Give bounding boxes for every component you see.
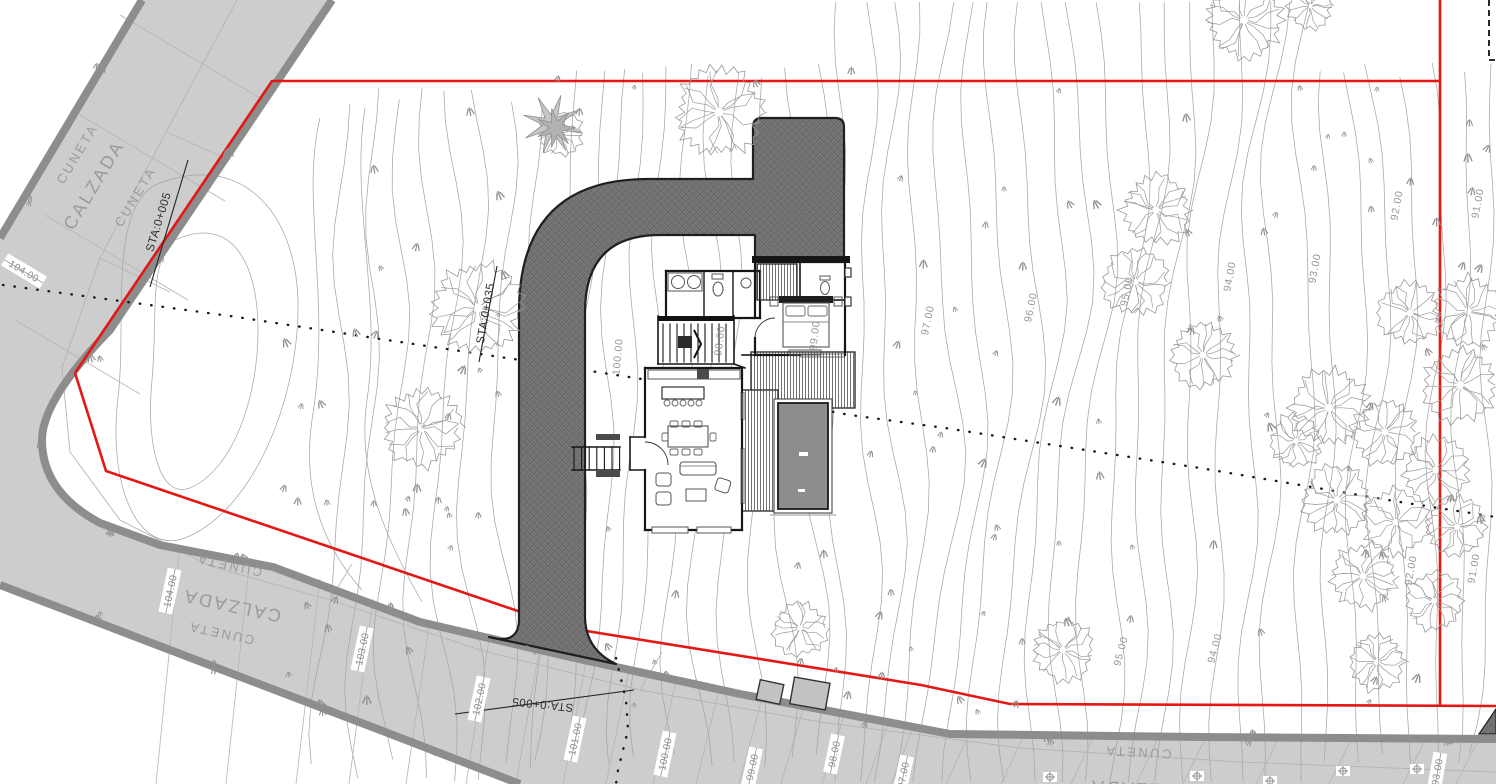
tree (1033, 617, 1093, 684)
tree-branch (386, 429, 419, 433)
tree (771, 601, 830, 657)
tree-branch (1136, 253, 1146, 279)
grass-tuft (930, 446, 937, 454)
level-marker (1336, 766, 1350, 776)
tree-branch (1399, 508, 1424, 521)
tree-branch (1218, 0, 1241, 18)
tree-branch (1137, 257, 1153, 280)
contour-line (1209, 2, 1243, 782)
tree (1286, 365, 1371, 444)
tree-branch (1430, 604, 1434, 629)
grass-tuft (1209, 540, 1217, 549)
tree-canopy (1170, 322, 1240, 390)
site-plan-canvas: CUNETACALZADACUNETACUNETACALZADACUNETACU… (0, 0, 1496, 784)
tree-branch (1444, 289, 1466, 309)
grass-tuft (992, 349, 999, 357)
tree-branch (1439, 461, 1466, 471)
tree-branch (1311, 0, 1324, 4)
tree-branch (1403, 316, 1409, 342)
site-plan-drawing: CUNETACALZADACUNETACUNETACALZADACUNETACU… (0, 0, 1496, 784)
grass-tuft (1052, 395, 1063, 407)
tree (1170, 322, 1240, 390)
stair-arrow (678, 336, 692, 348)
tree-branch (1187, 328, 1202, 352)
grass-tuft (96, 355, 103, 363)
level-marker (1190, 771, 1204, 781)
grass-tuft (1096, 418, 1102, 425)
tree-branch (1062, 653, 1066, 679)
tree-branch (1380, 435, 1385, 463)
contour-line (861, 2, 883, 782)
grass-tuft (1090, 198, 1102, 210)
tree (1101, 248, 1171, 316)
tree-canopy (1433, 272, 1496, 346)
tree-branch (1206, 335, 1228, 353)
grass-tuft (1474, 262, 1485, 274)
tree-branch (1065, 622, 1076, 647)
grass-tuft (351, 327, 361, 338)
tree-branch (1361, 545, 1368, 573)
tree-branch (1294, 7, 1309, 20)
grass-tuft (1096, 471, 1105, 481)
tree-branch (1248, 0, 1272, 18)
tree-branch (1174, 344, 1200, 354)
grass-tuft (1381, 594, 1389, 603)
grass-tuft (1182, 113, 1191, 123)
grass-tuft (316, 399, 326, 410)
contour-elevation-label: 93.00 (1307, 253, 1324, 285)
tree-branch (1247, 0, 1266, 17)
shed (790, 677, 830, 710)
tree-branch (1413, 583, 1432, 599)
tree-canopy (1033, 617, 1093, 684)
tree-branch (426, 409, 454, 426)
grass-tuft (893, 340, 902, 350)
tree (1206, 0, 1287, 61)
contour-line (1129, 2, 1171, 782)
grass-tuft (1056, 87, 1062, 94)
tree-branch (1159, 211, 1181, 231)
tree-branch (425, 431, 454, 447)
grass-tuft (955, 694, 965, 705)
tree-branch (1366, 435, 1384, 456)
tree (1301, 464, 1371, 536)
contour-line (942, 2, 988, 782)
bed-headboard (779, 296, 833, 303)
tree-branch (1396, 286, 1408, 310)
tree (1377, 280, 1441, 345)
tree-branch (476, 266, 483, 304)
grass-tuft (977, 457, 989, 469)
contour-elevation-label: 95.00 (1111, 635, 1130, 667)
grass-tuft (1065, 199, 1075, 210)
tree-branch (1374, 500, 1394, 520)
grass-tuft (447, 544, 454, 551)
tree-branch (1409, 603, 1432, 614)
tree-branch (1439, 471, 1465, 481)
contour-elevation-label: 95.00 (1118, 275, 1136, 307)
grass-tuft (1342, 131, 1347, 137)
tree-branch (1290, 0, 1308, 5)
dashed-corner-line (1489, 0, 1496, 60)
tree-branch (562, 134, 582, 136)
grass-tuft (324, 499, 330, 506)
grass-tuft (1367, 157, 1373, 164)
tree-branch (1274, 443, 1293, 455)
grass-tuft (370, 164, 379, 174)
tree-branch (1459, 529, 1476, 547)
tree-branch (1369, 524, 1393, 539)
tree-branch (1310, 8, 1317, 27)
tree-canopy (1301, 464, 1371, 536)
tree-branch (1271, 435, 1293, 441)
contour-elevation-label: 94.00 (1205, 632, 1224, 664)
grass-tuft (475, 512, 481, 519)
tree-branch (1279, 444, 1295, 460)
tree-branch (1203, 324, 1206, 352)
tree-branch (1173, 356, 1200, 364)
tree-branch (1380, 652, 1403, 661)
grass-tuft (576, 108, 583, 116)
tree-branch (1407, 471, 1433, 482)
tree-branch (1399, 516, 1426, 528)
tree-branch (1426, 575, 1435, 598)
column (845, 297, 851, 306)
tree-branch (1435, 528, 1455, 543)
grass-tuft (897, 174, 905, 182)
grass-tuft (1256, 627, 1265, 637)
grass-tuft (1374, 86, 1379, 92)
grass-tuft (843, 690, 852, 700)
tree (1285, 0, 1333, 31)
grass-tuft (993, 523, 1001, 531)
grass-tuft (446, 512, 453, 519)
grass-tuft (1056, 540, 1061, 546)
tree-branch (1464, 386, 1490, 404)
contour-elevation-label: 92.00 (1389, 190, 1406, 222)
contour-line (151, 233, 258, 490)
tree-canopy (1286, 365, 1371, 444)
tree-branch (1248, 9, 1279, 23)
tree-branch (1356, 644, 1375, 660)
tree-branch (775, 625, 798, 629)
grass-tuft (1272, 211, 1280, 219)
tree-branch (1432, 515, 1455, 525)
tree (675, 64, 766, 155)
grass-tuft (412, 242, 421, 252)
contour-line (1469, 64, 1494, 754)
tree-branch (775, 629, 797, 635)
contour-line (998, 2, 1046, 782)
tree-branch (1469, 314, 1472, 344)
tree-branch (723, 114, 759, 126)
tree-branch (1132, 212, 1153, 233)
deck-boards (742, 390, 778, 511)
tree-branch (1416, 446, 1433, 468)
tree-branch (722, 116, 737, 150)
stair-landing (658, 316, 734, 321)
grass-tuft (1265, 421, 1276, 433)
contour-line (1180, 2, 1215, 782)
tree-branch (1454, 281, 1467, 308)
grass-tuft (1019, 262, 1027, 271)
grass-tuft (848, 67, 855, 75)
tree-branch (1359, 579, 1363, 607)
grass-tuft (413, 483, 421, 493)
shed (756, 680, 784, 705)
grass-tuft (1378, 550, 1387, 560)
contour-elevation-label: 97.00 (919, 304, 937, 336)
grass-tuft (867, 450, 875, 459)
tree-branch (424, 431, 436, 462)
tree-branch (1387, 404, 1399, 429)
contour-line (606, 73, 643, 763)
floor (630, 437, 645, 470)
tree-canopy (771, 601, 830, 657)
grass-tuft (477, 367, 484, 374)
grass-tuft (405, 495, 412, 503)
grass-tuft (444, 506, 450, 513)
contour-line (1048, 2, 1094, 782)
tree-branch (1289, 444, 1296, 466)
tree-branch (1453, 499, 1456, 524)
tree-branch (1367, 636, 1376, 659)
grass-tuft (982, 221, 989, 229)
grass-tuft (1129, 544, 1135, 551)
station-label: STA:0+035 (475, 282, 497, 345)
grass-tuft (1127, 615, 1135, 624)
tree-branch (420, 432, 424, 465)
tree-branch (723, 93, 757, 109)
grass-tuft (1368, 205, 1375, 212)
level-marker (1410, 764, 1424, 774)
tree-branch (787, 630, 799, 650)
tree-branch (1206, 356, 1233, 362)
tree-branch (1340, 502, 1363, 521)
tree-branch (1439, 456, 1464, 469)
tree-branch (1297, 444, 1308, 464)
tree-branch (1387, 435, 1398, 462)
tree-branch (1396, 286, 1409, 310)
grass-tuft (888, 589, 895, 597)
tree-branch (1459, 389, 1460, 420)
tree-branch (1299, 442, 1319, 454)
tree-branch (1245, 24, 1261, 53)
grass-tuft (402, 507, 410, 516)
tree-branch (1138, 284, 1153, 307)
tree-canopy (1101, 248, 1171, 316)
contour-line (966, 2, 1013, 782)
tree-branch (1464, 374, 1494, 384)
tree-branch (1280, 421, 1294, 439)
grass-tuft (919, 259, 927, 269)
tree-branch (386, 417, 419, 427)
grass-tuft (280, 337, 291, 349)
floor (645, 368, 742, 530)
grass-tuft (1297, 85, 1303, 92)
tree-branch (1158, 189, 1181, 208)
tree-branch (1366, 577, 1393, 585)
grass-tuft (1466, 119, 1473, 127)
tree-branch (1354, 663, 1374, 677)
tree-branch (1380, 660, 1405, 666)
contour-line (913, 2, 966, 782)
tree-branch (1293, 406, 1325, 417)
grass-tuft (603, 641, 613, 652)
grass-tuft (875, 610, 885, 621)
tree-branch (722, 81, 746, 109)
tree (1433, 272, 1496, 346)
tree-branch (1333, 397, 1365, 407)
window-sill (697, 527, 731, 533)
tree-branch (1248, 22, 1280, 28)
tree-branch (389, 431, 419, 446)
tree-branch (1350, 657, 1374, 662)
tree-branch (1411, 451, 1433, 468)
grass-tuft (1406, 177, 1414, 186)
level-marker (1263, 776, 1277, 784)
tree-branch (1131, 251, 1135, 279)
tree (1350, 633, 1409, 694)
contour-line (1024, 2, 1067, 782)
grass-tuft (980, 610, 986, 617)
grass-tuft (1264, 411, 1271, 418)
tree-branch (1415, 473, 1434, 493)
grass-tuft (465, 107, 474, 117)
tree-branch (1471, 284, 1487, 309)
level-marker (1043, 772, 1057, 782)
contour-elevation-label: 94.00 (1222, 261, 1239, 293)
tree-branch (1379, 664, 1399, 679)
tree-branch (1336, 504, 1349, 531)
closet (757, 264, 797, 300)
grass-tuft (1002, 186, 1007, 191)
tree-branch (1234, 0, 1242, 16)
grass-tuft (937, 431, 944, 439)
contour-line (894, 2, 929, 782)
grass-tuft (1464, 153, 1472, 163)
tree-branch (449, 277, 474, 305)
grass-tuft (952, 306, 958, 313)
tree-canopy (1423, 345, 1496, 426)
tree-branch (1312, 8, 1328, 19)
tree-branch (1366, 572, 1394, 577)
tree-branch (1411, 283, 1416, 310)
grass-tuft (1361, 549, 1370, 559)
tree-branch (1413, 294, 1434, 311)
window-sill (652, 527, 688, 533)
contour-line (1259, 2, 1290, 782)
grass-tuft (279, 484, 288, 494)
grass-tuft (294, 497, 301, 505)
contour-elevation-label: 91.00 (1466, 553, 1483, 585)
grass-tuft (671, 589, 680, 599)
tree-branch (1201, 358, 1203, 386)
contour-line (361, 108, 422, 602)
tree-branch (1367, 665, 1376, 688)
tree-branch (1332, 574, 1360, 576)
grass-tuft (1325, 133, 1330, 139)
tree-branch (709, 117, 721, 153)
tree-branch (1358, 642, 1376, 659)
tree-branch (1341, 501, 1368, 513)
tree-branch (1204, 325, 1213, 352)
tree-canopy (1377, 280, 1441, 345)
grass-tuft (990, 533, 998, 541)
grass-tuft (652, 659, 657, 665)
grass-tuft (1423, 347, 1433, 358)
stove (697, 369, 709, 379)
grass-tuft (494, 390, 502, 398)
column (845, 268, 851, 277)
grass-tuft (1311, 165, 1317, 172)
tree-branch (1405, 468, 1433, 472)
grass-tuft (1483, 143, 1493, 153)
tree-branch (1135, 213, 1154, 236)
tree-branch (1138, 272, 1164, 284)
tree-branch (423, 397, 442, 424)
tree-branch (1461, 352, 1472, 381)
pool-ladder (798, 489, 805, 492)
grass-tuft (820, 549, 828, 558)
grass-tuft (457, 364, 469, 376)
grass-tuft (1412, 672, 1423, 684)
contour-line (1425, 63, 1446, 753)
tree-branch (1385, 401, 1387, 429)
tree-canopy (1206, 0, 1287, 61)
grass-tuft (1458, 261, 1468, 271)
tree (1423, 345, 1496, 426)
grass-tuft (974, 708, 981, 715)
planter (596, 434, 620, 440)
tree-branch (1244, 0, 1248, 16)
tree-branch (1159, 212, 1187, 220)
contour-elevation-label: 92.00 (1403, 555, 1420, 587)
tree-branch (1366, 514, 1393, 525)
contour-elevation-label: 100.00 (610, 338, 625, 376)
grass-tuft (298, 402, 305, 409)
house-floor-plan (572, 256, 855, 533)
tree-branch (1408, 592, 1431, 601)
tree-canopy (675, 64, 766, 155)
grass-tuft (494, 190, 505, 202)
pool-ladder (799, 452, 808, 456)
grass-tuft (909, 646, 914, 652)
grass-tuft (377, 264, 385, 272)
contour-line (874, 2, 907, 782)
contour-line (1292, 2, 1316, 782)
grass-tuft (632, 84, 637, 90)
tree-branch (710, 71, 719, 108)
contour-line (309, 118, 362, 590)
tree-canopy (1350, 633, 1409, 694)
tree-branch (1337, 467, 1343, 497)
tree-branch (803, 629, 824, 638)
pavement-wedge (1479, 709, 1496, 734)
planter (596, 471, 620, 477)
grass-tuft (794, 561, 802, 569)
contour-line (1318, 71, 1336, 761)
tree-branch (1411, 316, 1427, 338)
contour-elevation-label: 96.00 (1022, 291, 1040, 323)
tree-branch (1437, 298, 1464, 310)
tree-branch (1332, 411, 1347, 441)
tree-branch (444, 310, 474, 333)
